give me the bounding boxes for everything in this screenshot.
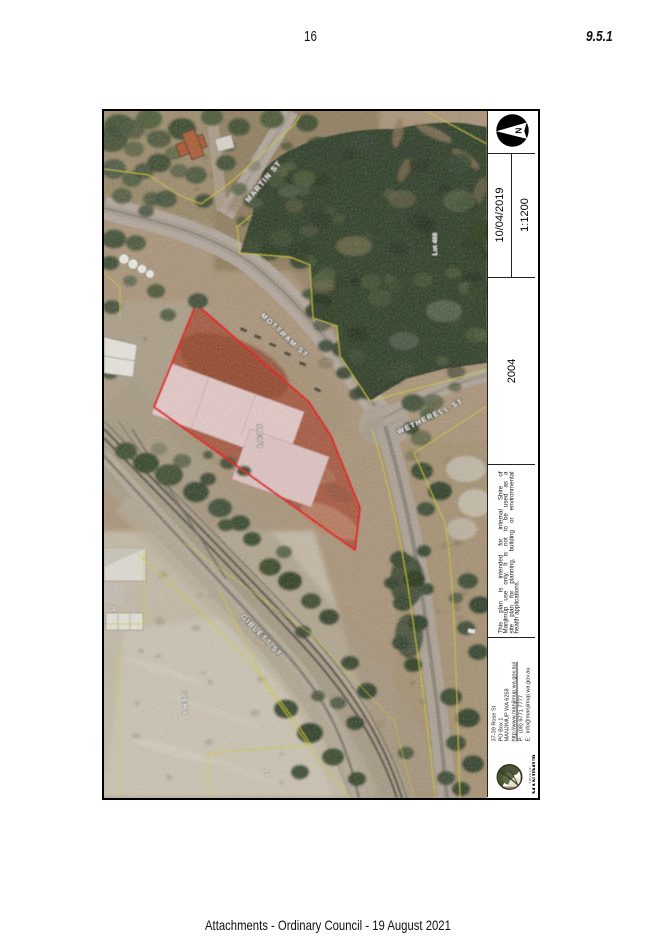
svg-text:MANJIMUP: MANJIMUP <box>531 754 535 794</box>
svg-text:N: N <box>514 128 524 134</box>
